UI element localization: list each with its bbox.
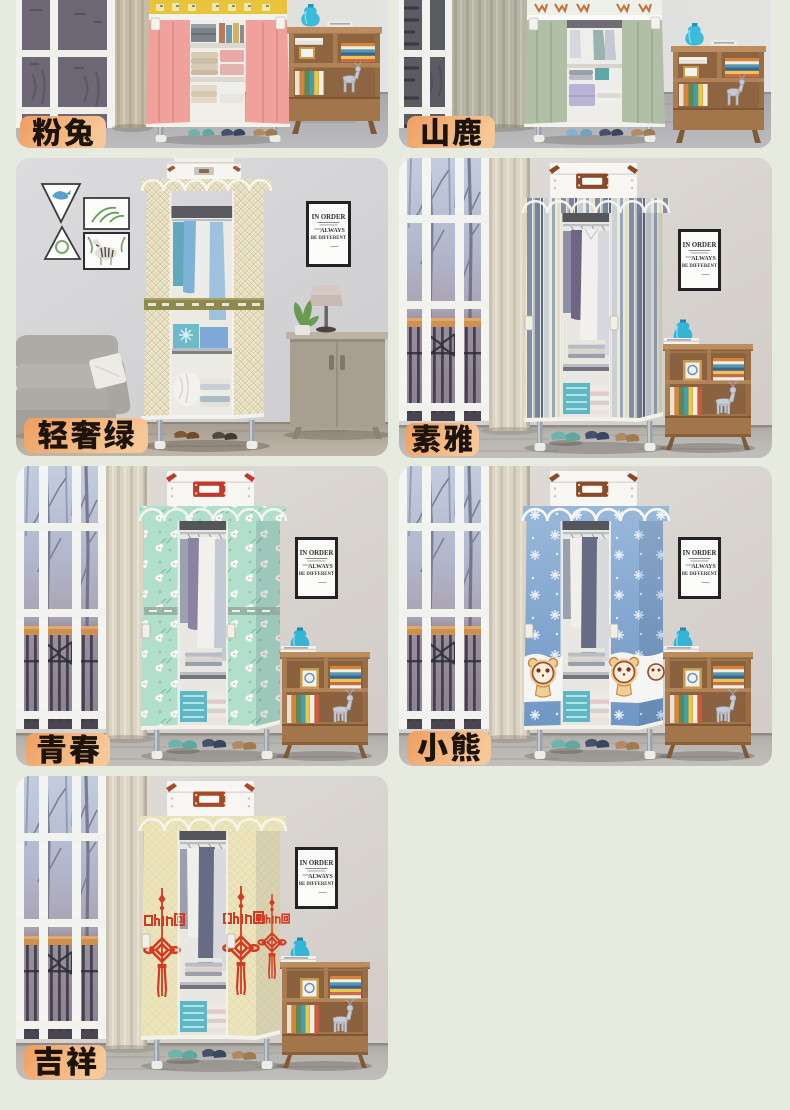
svg-text:IN ORDER: IN ORDER [300,550,334,557]
svg-text:IN ORDER: IN ORDER [683,550,717,557]
svg-text:IN ORDER: IN ORDER [683,242,717,249]
svg-text:IN ORDER: IN ORDER [300,860,334,867]
svg-text:IN ORDER: IN ORDER [312,214,346,221]
svg-text:ALWAYS: ALWAYS [691,256,716,262]
svg-text:BE DIFFERENT: BE DIFFERENT [299,572,335,577]
svg-text:ALWAYS: ALWAYS [691,564,716,570]
svg-text:ALWAYS: ALWAYS [320,228,345,234]
svg-text:BE DIFFERENT: BE DIFFERENT [682,572,718,577]
svg-text:ALWAYS: ALWAYS [308,874,333,880]
svg-text:ALWAYS: ALWAYS [308,564,333,570]
svg-text:BE DIFFERENT: BE DIFFERENT [299,882,335,887]
svg-text:BE DIFFERENT: BE DIFFERENT [311,236,347,241]
svg-text:BE DIFFERENT: BE DIFFERENT [682,264,718,269]
